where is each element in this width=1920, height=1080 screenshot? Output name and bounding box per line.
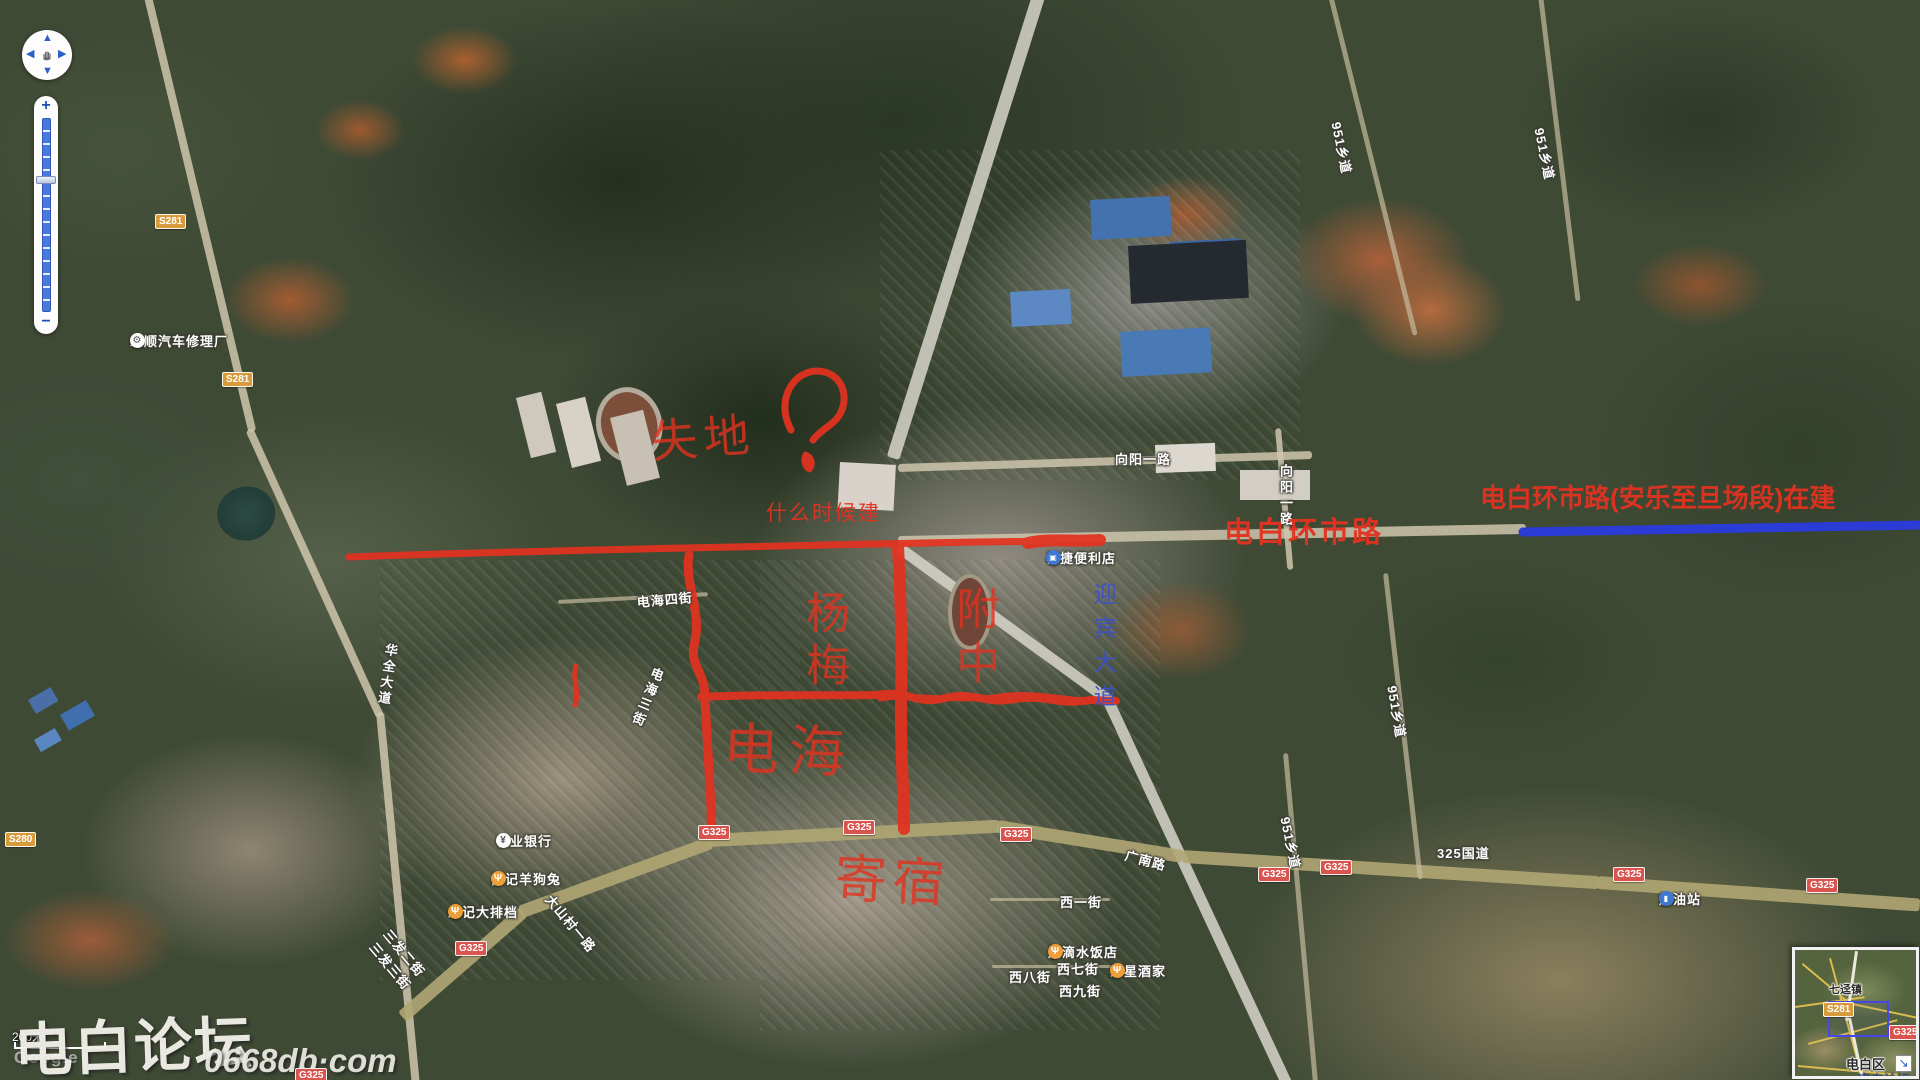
poi-label[interactable]: 易捷便利店▣ — [1046, 548, 1116, 567]
road-label-yingbin-avenue: 迎宾大道 — [1091, 582, 1115, 718]
restaurant-icon[interactable]: Ψ — [1110, 963, 1125, 978]
poi-label[interactable]: 加油站▮ — [1659, 889, 1701, 908]
restaurant-icon[interactable]: Ψ — [491, 871, 506, 886]
poi-label[interactable]: 农业银行¥ — [496, 831, 552, 850]
zoom-handle[interactable] — [36, 176, 56, 184]
note-huanshi-inbuild: 电白环市路(安乐至旦场段)在建 — [1480, 485, 1835, 512]
pan-down-arrow[interactable]: ▼ — [42, 66, 53, 77]
route-badge-g325: G325 — [1320, 860, 1352, 875]
red-question-mark — [785, 371, 844, 440]
red-line-huanshi-west — [349, 541, 1096, 557]
bank-icon[interactable]: ¥ — [496, 833, 511, 848]
minimap-town-label: 七迳镇 — [1829, 981, 1862, 997]
route-badge-g325: G325 — [295, 1068, 327, 1080]
route-badge-g325: G325 — [1613, 867, 1645, 882]
zoom-in-button[interactable]: + — [37, 98, 55, 116]
overview-minimap[interactable]: 七迳镇 S281 G325 电白区 电白论坛 ↘ — [1792, 947, 1919, 1079]
road-label: 向阳一路 — [1115, 449, 1171, 468]
blue-planned-road-line — [1523, 525, 1920, 532]
restaurant-icon[interactable]: Ψ — [448, 904, 463, 919]
road-label: 西七街 — [1057, 959, 1099, 978]
label-text: 325国道 — [1437, 843, 1490, 862]
label-text: 西九街 — [1059, 981, 1101, 1000]
zoom-slider[interactable]: + − — [34, 96, 58, 334]
minimap-badge-g325: G325 — [1889, 1025, 1919, 1040]
zoom-out-button[interactable]: − — [37, 314, 55, 332]
minimap-badge-s281: S281 — [1823, 1002, 1854, 1017]
road-label: 西一街 — [1060, 892, 1102, 911]
minimap-expand-button[interactable]: ↘ — [1895, 1055, 1912, 1072]
route-badge-g325: G325 — [1806, 878, 1838, 893]
label-text: 向阳一路 — [1115, 449, 1171, 468]
route-badge-s281: S281 — [155, 214, 186, 229]
road-label: 325国道 — [1437, 843, 1490, 862]
note-when-built: 什么时候建 — [766, 503, 881, 525]
road-label: 西九街 — [1059, 981, 1101, 1000]
red-line-vertical-2 — [898, 547, 904, 829]
route-badge-s280: S280 — [5, 832, 36, 847]
label-text: 西七街 — [1057, 959, 1099, 978]
red-line-end-blob — [1028, 540, 1100, 543]
repair-icon[interactable]: ⚙ — [130, 333, 145, 348]
restaurant-icon[interactable]: Ψ — [1048, 944, 1063, 959]
note-jisu: 寄宿 — [833, 852, 952, 913]
zoom-track[interactable] — [42, 118, 51, 312]
note-yangmei: 杨梅 — [800, 590, 846, 694]
route-badge-g325: G325 — [698, 825, 730, 840]
poi-label[interactable]: 忠记大排档Ψ — [448, 902, 518, 921]
map-canvas[interactable]: ▲ ▼ ◀ ▶ + − 200米 Google 电白论坛 0668db·com … — [0, 0, 1920, 1080]
poi-label[interactable]: Ψ东星酒家 — [1110, 961, 1166, 980]
road-label: 西八街 — [1009, 967, 1051, 986]
pan-control[interactable]: ▲ ▼ ◀ ▶ — [22, 30, 72, 80]
store-icon[interactable]: ▣ — [1046, 550, 1061, 565]
hand-icon[interactable] — [39, 47, 55, 63]
poi-label[interactable]: 昌记羊狗兔Ψ — [491, 869, 561, 888]
route-badge-g325: G325 — [1000, 827, 1032, 842]
poi-label[interactable]: 永顺汽车修理厂⚙ — [130, 331, 228, 350]
pan-right-arrow[interactable]: ▶ — [58, 49, 66, 60]
route-badge-g325: G325 — [843, 820, 875, 835]
route-badge-g325: G325 — [1258, 867, 1290, 882]
label-text: 西八街 — [1009, 967, 1051, 986]
pan-left-arrow[interactable]: ◀ — [26, 49, 34, 60]
note-fuzhong: 附中 — [950, 586, 996, 694]
note-huanshi-road: 电白环市路 — [1224, 518, 1384, 548]
annotation-drawing-layer — [0, 0, 1920, 1080]
route-badge-g325: G325 — [455, 941, 487, 956]
pan-up-arrow[interactable]: ▲ — [42, 33, 53, 44]
route-badge-s281: S281 — [222, 372, 253, 387]
gas-icon[interactable]: ▮ — [1659, 891, 1674, 906]
red-question-dot — [803, 453, 813, 471]
red-tick — [575, 666, 577, 705]
label-text: 西一街 — [1060, 892, 1102, 911]
note-dianhai: 电海 — [722, 720, 856, 783]
note-shidi: 失地 — [650, 411, 757, 466]
